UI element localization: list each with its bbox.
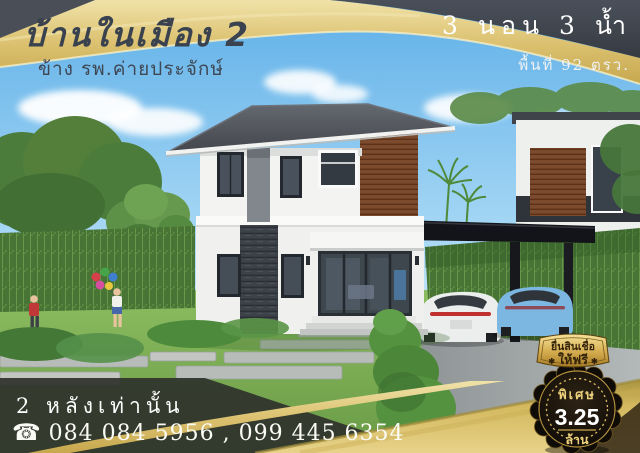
phone-row: ☎084 084 5956 , 099 445 6354: [12, 420, 405, 446]
spec-block: 3 นอน 3 น้ำ พื้นที่ 92 ตรว.: [442, 6, 632, 77]
blue-car: [493, 287, 577, 341]
promo-ribbon: ยื่นสินเชื่อ ✱ให้ฟรี✱: [537, 334, 609, 367]
hedge-left: [0, 226, 195, 312]
wall-lamp-left: [306, 256, 310, 265]
stone-accent-stripe: [240, 225, 278, 334]
seal-price: 3.25: [555, 404, 600, 430]
spec-rooms: 3 นอน 3 น้ำ: [442, 6, 632, 46]
seal-unit: ล้าน: [565, 433, 589, 447]
telephone-icon: ☎: [12, 420, 42, 446]
phone-numbers: 084 084 5956 , 099 445 6354: [49, 421, 405, 446]
availability-text: 2 หลังเท่านั้น: [16, 390, 185, 423]
ribbon-line1: ยื่นสินเชื่อ: [551, 338, 595, 353]
spec-area: พื้นที่ 92 ตรว.: [442, 53, 632, 77]
entrance-canopy: [310, 232, 424, 248]
real-estate-poster: พิเศษ 3.25 ล้าน ยื่นสินเชื่อ ✱ให้ฟรี✱ บ้…: [0, 0, 640, 453]
seal-label: พิเศษ: [558, 387, 596, 402]
wall-lamp-right: [415, 256, 419, 265]
entrance: [300, 232, 428, 335]
upper-accent-stripe: [247, 148, 270, 222]
project-location: ข้าง รพ.ค่ายประจักษ์: [38, 54, 224, 84]
